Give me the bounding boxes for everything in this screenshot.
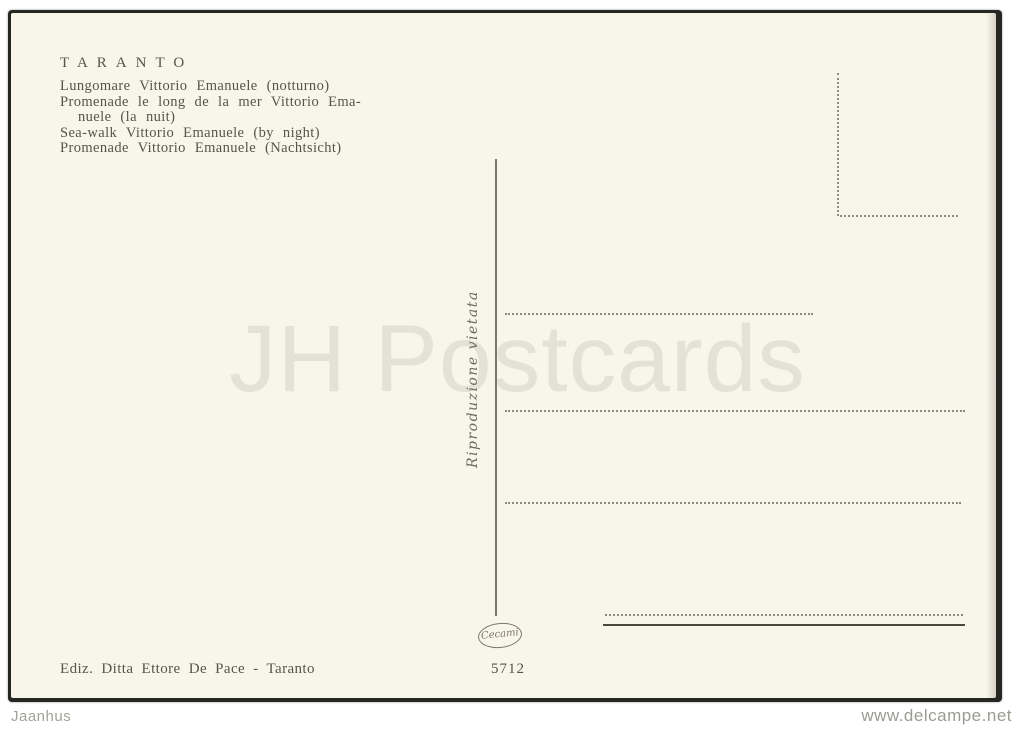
address-line-4 xyxy=(605,614,963,616)
caption-line-french-cont: nuele (la nuit) xyxy=(60,110,460,126)
watermark-text: JH Postcards xyxy=(229,305,809,414)
seller-watermark: Jaanhus xyxy=(11,708,71,725)
reproduction-notice: Riproduzione vietata xyxy=(463,298,483,468)
delcampe-url[interactable]: www.delcampe.net xyxy=(861,706,1012,726)
address-line-5-solid xyxy=(603,624,965,626)
serial-number: 5712 xyxy=(491,661,525,678)
caption-block: TARANTO Lungomare Vittorio Emanuele (not… xyxy=(60,55,460,157)
caption-line-italian: Lungomare Vittorio Emanuele (notturno) xyxy=(60,79,460,95)
postcard-back: JH Postcards TARANTO Lungomare Vittorio … xyxy=(11,13,996,698)
address-line-2 xyxy=(505,410,965,412)
address-line-1 xyxy=(505,313,813,315)
publisher-imprint: Ediz. Ditta Ettore De Pace - Taranto xyxy=(60,661,315,678)
center-divider-line xyxy=(495,159,497,616)
card-title: TARANTO xyxy=(60,55,460,72)
caption-line-german: Promenade Vittorio Emanuele (Nachtsicht) xyxy=(60,141,460,157)
postcard-scan: JH Postcards TARANTO Lungomare Vittorio … xyxy=(8,10,1002,702)
stamp-area-bottom-edge xyxy=(840,215,958,217)
stamp-area-left-edge xyxy=(837,73,839,216)
caption-line-english: Sea-walk Vittorio Emanuele (by night) xyxy=(60,126,460,142)
caption-line-french: Promenade le long de la mer Vittorio Ema… xyxy=(60,95,460,111)
address-line-3 xyxy=(505,502,961,504)
printer-logo-oval: Cecami xyxy=(477,621,523,650)
